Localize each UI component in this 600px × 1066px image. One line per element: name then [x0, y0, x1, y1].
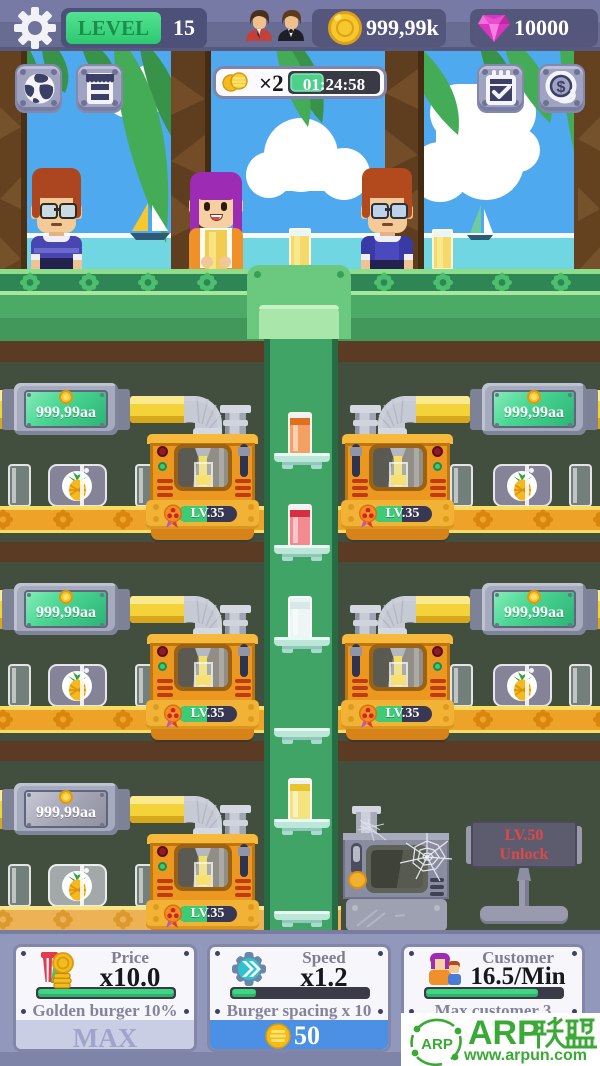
svg-text:×2: ×2: [259, 71, 284, 96]
svg-text:01:24:58: 01:24:58: [303, 75, 365, 94]
svg-text:ARP: ARP: [421, 1036, 453, 1053]
svg-text:$: $: [557, 79, 566, 96]
